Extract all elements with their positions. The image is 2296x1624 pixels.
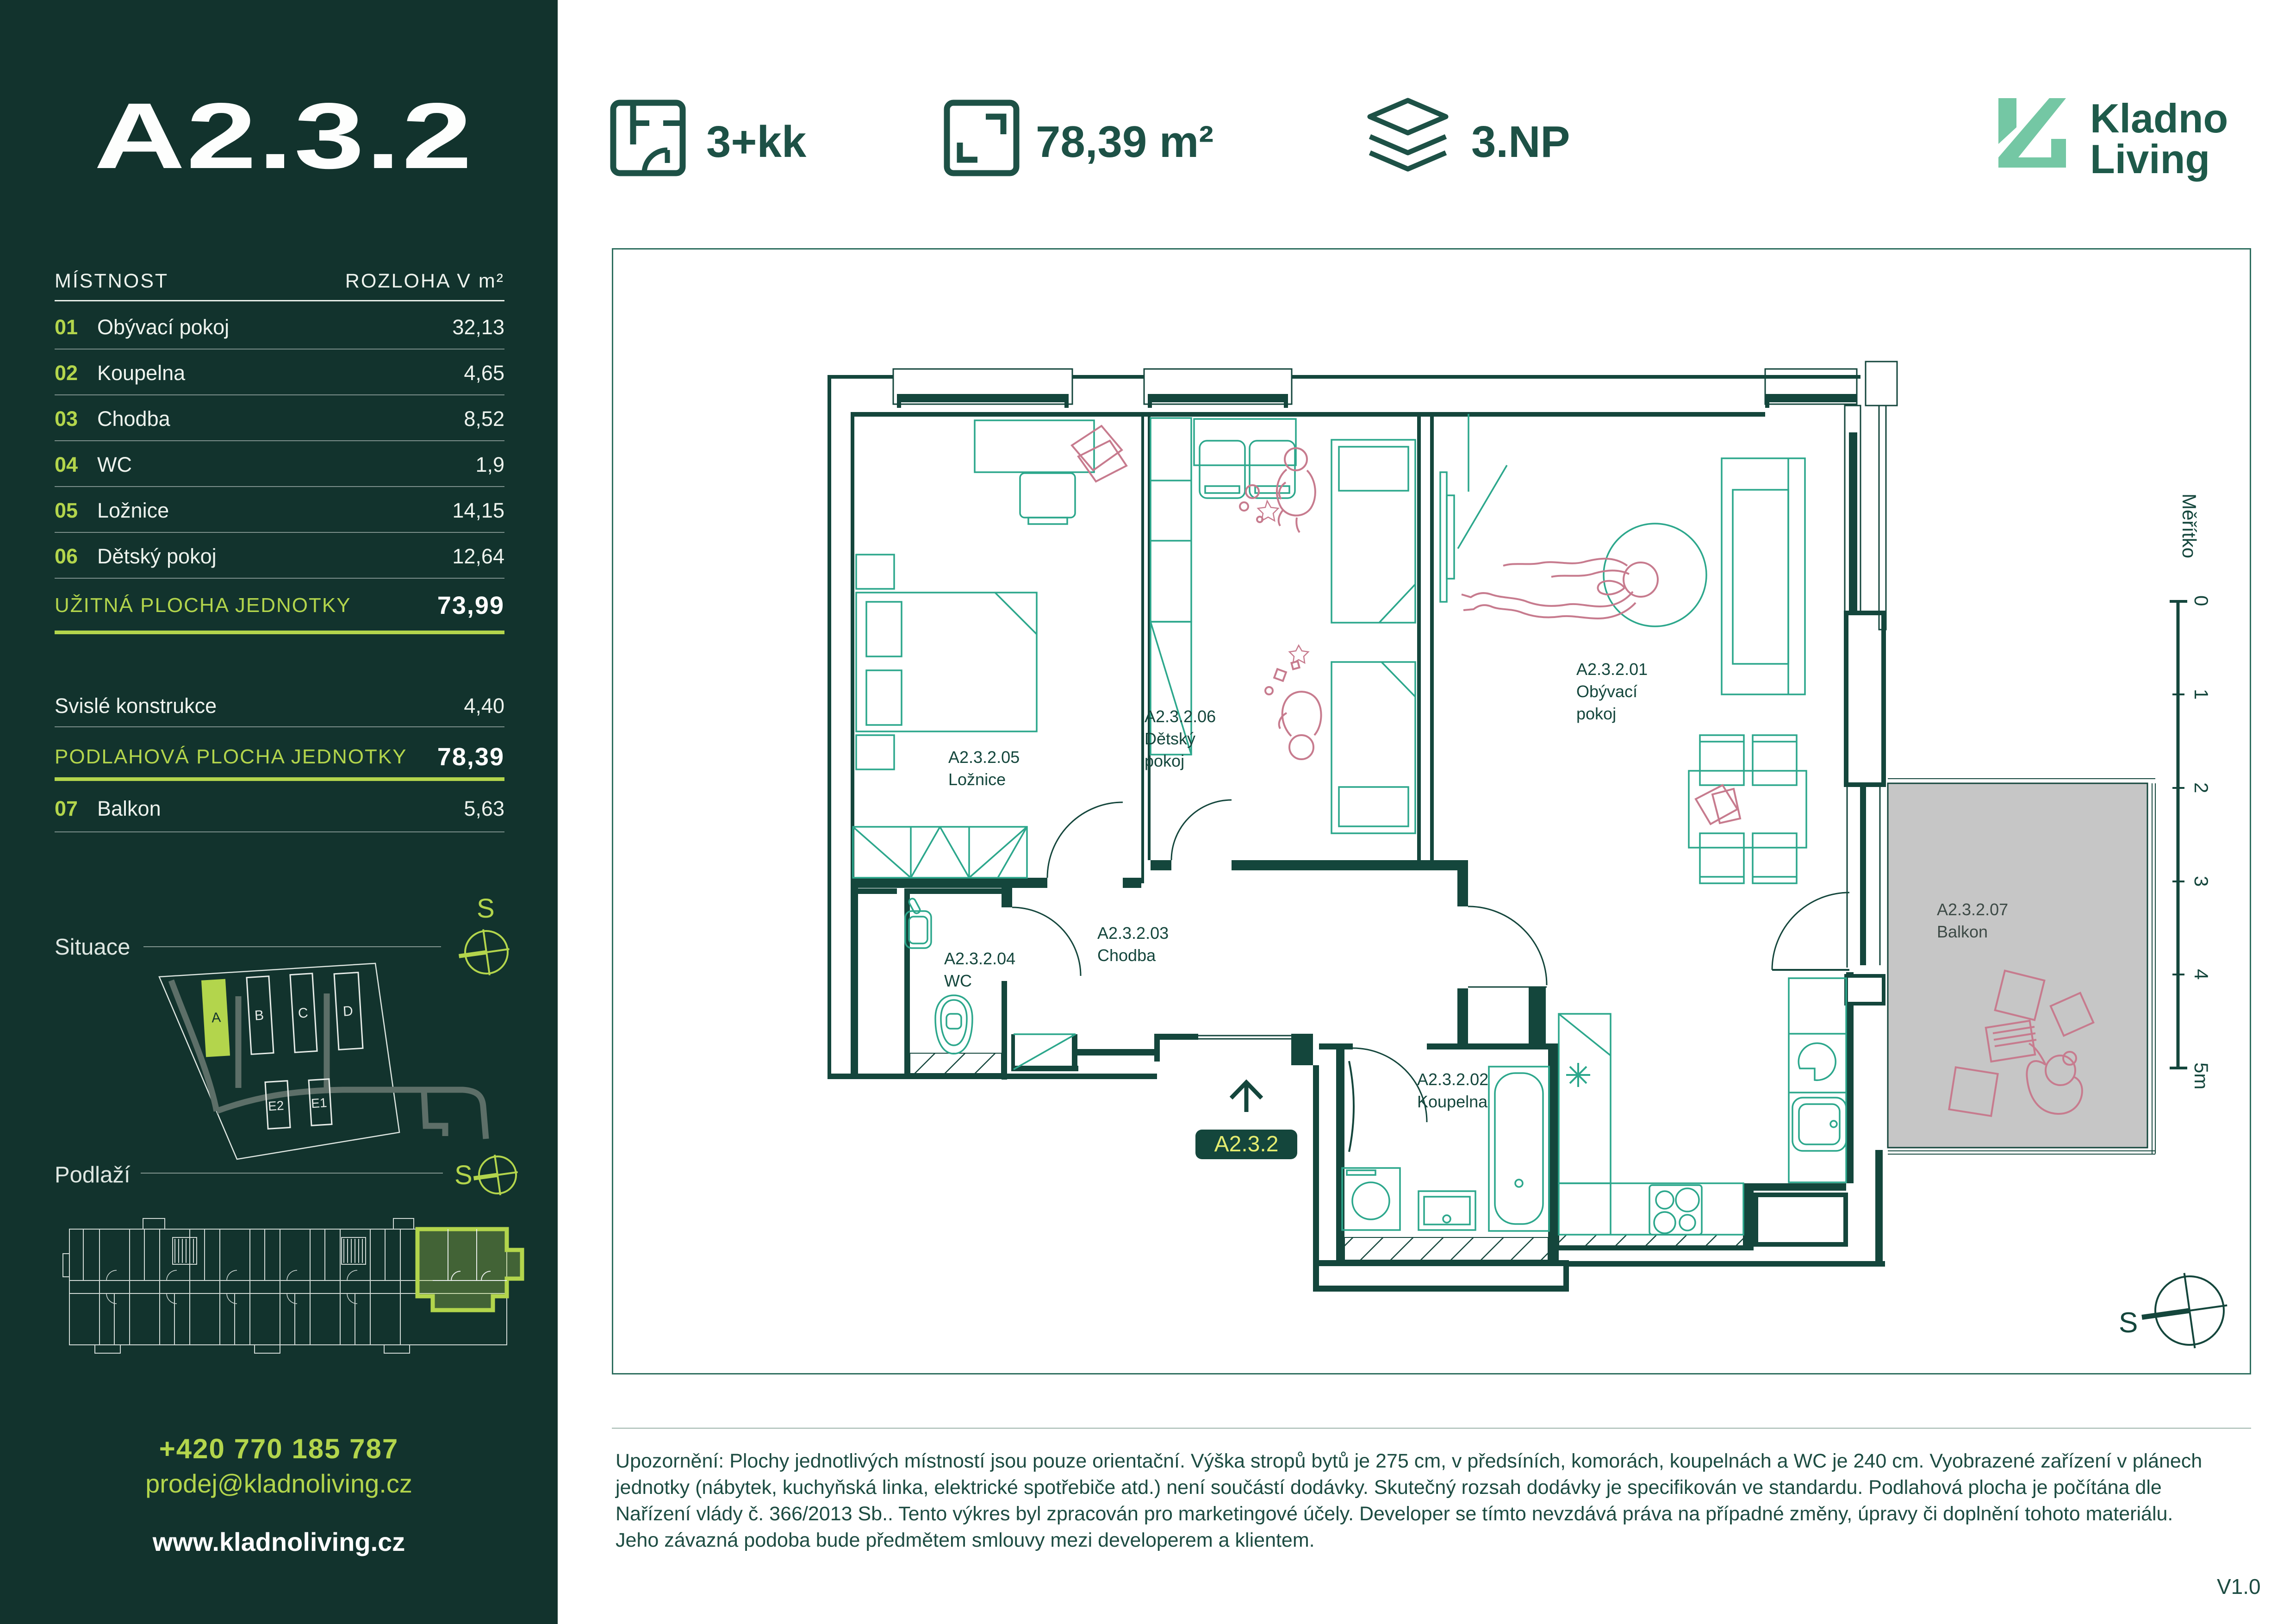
svg-text:0: 0: [2190, 595, 2212, 606]
svg-text:A2.3.2.01Obývacípokoj: A2.3.2.01Obývacípokoj: [1576, 660, 1648, 723]
svg-text:A2.3.2.05Ložnice: A2.3.2.05Ložnice: [948, 748, 1020, 789]
svg-text:A2.3.2.06Dětskýpokoj: A2.3.2.06Dětskýpokoj: [1145, 707, 1216, 770]
svg-text:2: 2: [2190, 782, 2212, 793]
svg-text:A2.3.2.02Koupelna: A2.3.2.02Koupelna: [1417, 1070, 1488, 1111]
svg-text:5m: 5m: [2190, 1062, 2212, 1089]
svg-text:S: S: [2119, 1307, 2138, 1339]
svg-text:Měřítko: Měřítko: [2178, 493, 2200, 558]
svg-text:A2.3.2.03Chodba: A2.3.2.03Chodba: [1097, 924, 1169, 965]
svg-text:1: 1: [2190, 689, 2212, 700]
svg-text:3: 3: [2190, 876, 2212, 887]
svg-text:4: 4: [2190, 969, 2212, 980]
svg-text:A2.3.2: A2.3.2: [1214, 1132, 1279, 1156]
